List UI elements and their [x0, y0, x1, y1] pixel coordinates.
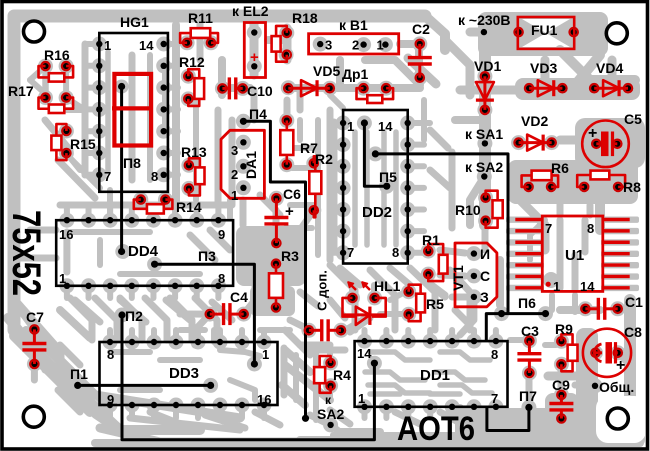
svg-text:9: 9	[107, 392, 114, 407]
svg-text:R17: R17	[8, 83, 34, 99]
svg-text:П6: П6	[518, 295, 536, 311]
svg-text:HL1: HL1	[374, 278, 401, 294]
svg-text:7: 7	[545, 221, 552, 236]
svg-text:3: 3	[325, 38, 332, 53]
svg-text:1: 1	[231, 188, 238, 203]
svg-text:DD2: DD2	[362, 204, 392, 221]
svg-text:1: 1	[104, 38, 111, 53]
svg-text:75x52: 75x52	[4, 210, 48, 296]
svg-text:П3: П3	[198, 248, 216, 264]
svg-text:DD4: DD4	[128, 243, 159, 260]
svg-text:C2: C2	[412, 21, 430, 37]
svg-text:+: +	[285, 203, 294, 220]
svg-text:SA2: SA2	[317, 406, 344, 422]
svg-text:8: 8	[218, 271, 225, 286]
svg-text:R10: R10	[455, 202, 481, 218]
svg-text:R1: R1	[422, 232, 440, 248]
svg-text:R4: R4	[333, 367, 351, 383]
svg-text:U1: U1	[565, 247, 584, 264]
svg-text:R2: R2	[315, 151, 333, 167]
svg-text:2: 2	[352, 38, 359, 53]
svg-text:16: 16	[257, 392, 271, 407]
svg-text:8: 8	[151, 169, 158, 184]
svg-text:8: 8	[392, 245, 399, 260]
svg-text:2: 2	[231, 167, 238, 182]
svg-text:C6: C6	[283, 186, 301, 202]
svg-text:7: 7	[104, 169, 111, 184]
svg-text:8: 8	[107, 347, 114, 362]
svg-text:к В1: к В1	[339, 17, 368, 33]
svg-text:R16: R16	[44, 47, 70, 63]
svg-text:3: 3	[231, 143, 238, 158]
svg-text:8: 8	[491, 347, 498, 362]
svg-text:к: к	[325, 393, 332, 407]
svg-text:к SA2: к SA2	[465, 159, 503, 175]
svg-text:14: 14	[378, 119, 393, 134]
svg-text:14: 14	[357, 346, 372, 361]
svg-text:C8: C8	[624, 324, 642, 340]
svg-text:П2: П2	[125, 308, 143, 324]
svg-text:R13: R13	[181, 144, 207, 160]
svg-text:1: 1	[262, 347, 269, 362]
svg-text:HG1: HG1	[120, 14, 149, 30]
svg-text:З: З	[480, 289, 489, 305]
svg-text:VD4: VD4	[596, 60, 623, 76]
svg-text:R11: R11	[188, 10, 213, 26]
svg-text:R9: R9	[555, 321, 573, 337]
svg-text:7: 7	[491, 391, 498, 406]
svg-text:1: 1	[347, 119, 354, 134]
svg-text:16: 16	[59, 227, 73, 242]
svg-text:C9: C9	[552, 377, 570, 393]
svg-text:R5: R5	[426, 296, 444, 312]
svg-text:1: 1	[377, 38, 384, 53]
svg-text:7: 7	[347, 245, 354, 260]
svg-text:Др1: Др1	[342, 66, 369, 82]
svg-text:DD3: DD3	[169, 365, 199, 382]
svg-text:+: +	[616, 357, 625, 374]
svg-text:R18: R18	[292, 10, 318, 26]
svg-text:С доп.: С доп.	[315, 270, 330, 311]
svg-text:14: 14	[139, 38, 154, 53]
svg-text:VD3: VD3	[530, 60, 557, 76]
svg-text:С: С	[480, 268, 490, 284]
svg-text:VT1: VT1	[450, 265, 466, 291]
svg-text:П1: П1	[70, 366, 88, 382]
svg-text:П5: П5	[379, 169, 397, 185]
svg-text:П8: П8	[123, 155, 141, 171]
svg-text:DA1: DA1	[243, 151, 259, 179]
svg-text:к EL2: к EL2	[232, 3, 269, 19]
svg-text:VD5: VD5	[313, 63, 340, 79]
svg-text:R8: R8	[623, 179, 641, 195]
svg-text:C7: C7	[26, 309, 44, 325]
svg-text:R3: R3	[281, 248, 299, 264]
svg-text:AOT6: AOT6	[397, 410, 475, 448]
svg-text:П4: П4	[249, 106, 267, 122]
svg-text:14: 14	[580, 279, 595, 294]
svg-text:1: 1	[553, 279, 560, 294]
svg-text:1: 1	[59, 271, 66, 286]
svg-text:C5: C5	[624, 111, 642, 127]
svg-text:9: 9	[218, 227, 225, 242]
svg-text:1: 1	[358, 391, 365, 406]
svg-text:Общ.: Общ.	[599, 379, 634, 395]
svg-text:C3: C3	[521, 323, 539, 339]
svg-text:C1: C1	[625, 294, 643, 310]
svg-text:И: И	[480, 246, 490, 262]
svg-text:C4: C4	[230, 289, 248, 305]
svg-text:VD1: VD1	[474, 58, 501, 74]
svg-text:R12: R12	[179, 54, 205, 70]
svg-text:R14: R14	[176, 199, 202, 215]
svg-text:R6: R6	[551, 160, 569, 176]
svg-text:FU1: FU1	[531, 22, 558, 38]
svg-text:к SA1: к SA1	[465, 126, 503, 142]
svg-text:DD1: DD1	[420, 367, 450, 384]
svg-text:R15: R15	[70, 136, 96, 152]
svg-text:+: +	[250, 49, 259, 66]
svg-text:П7: П7	[519, 388, 537, 404]
svg-text:8: 8	[587, 221, 594, 236]
svg-text:VD2: VD2	[521, 113, 548, 129]
svg-text:C10: C10	[247, 83, 273, 99]
svg-text:к ~230В: к ~230В	[458, 12, 511, 28]
